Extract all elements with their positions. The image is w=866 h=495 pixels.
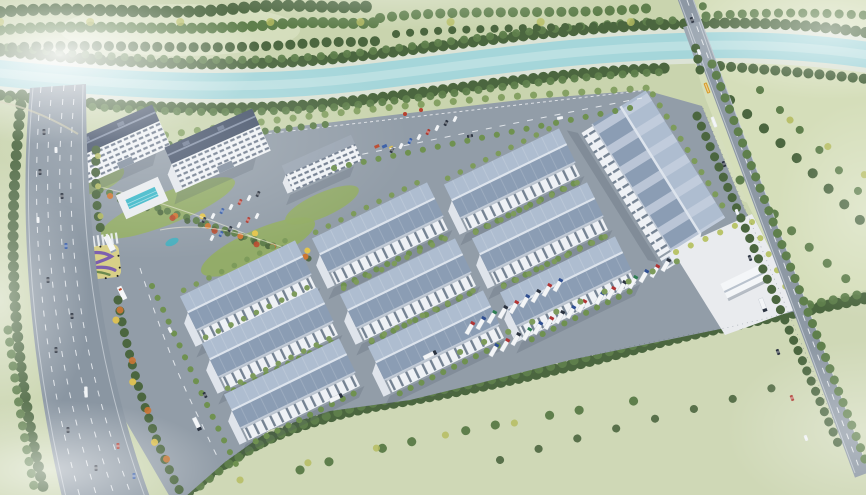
aerial-rendering: Aerial architectural rendering of a rive… <box>0 0 866 495</box>
bus <box>84 386 88 397</box>
scene-canvas: Aerial architectural rendering of a rive… <box>0 0 866 495</box>
pavilion <box>419 108 423 112</box>
